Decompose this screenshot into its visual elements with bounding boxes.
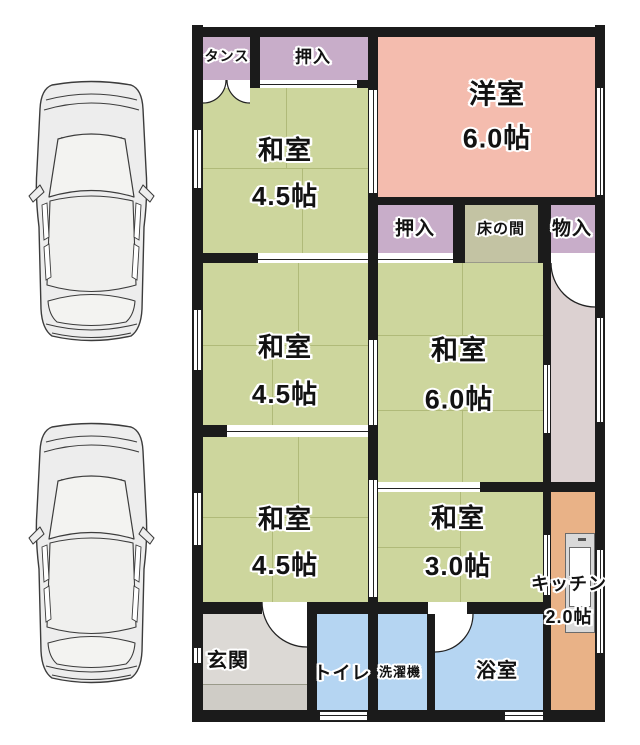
opening-h6 xyxy=(378,483,480,492)
parking-car-2 xyxy=(29,424,154,683)
label-washitsu-d-size: 4.5帖 xyxy=(252,552,318,578)
window-bath xyxy=(505,711,543,721)
window-toilet xyxy=(320,711,367,721)
room-corridor xyxy=(551,263,595,482)
opening-washitsu-a-western xyxy=(369,90,377,193)
wall-below-western xyxy=(368,197,605,205)
opening-h1 xyxy=(258,254,368,263)
opening-oshiire-mid xyxy=(378,254,453,263)
window-corridor xyxy=(596,318,604,422)
wall-outer-top xyxy=(192,27,605,37)
floor-plan-page: タンス 押入 洋室 6.0帖 和室 4.5帖 押入 床の間 物入 和室 4.5帖… xyxy=(0,0,640,745)
label-tokonoma: 床の間 xyxy=(477,222,525,237)
room-laundry xyxy=(376,614,427,710)
label-washitsu-a-name: 和室 xyxy=(258,137,312,163)
wall-laundry-bath xyxy=(427,614,435,710)
parking-car-1 xyxy=(29,82,154,341)
wall-toilet-left xyxy=(307,602,317,710)
wall-tansu-pillar xyxy=(250,37,260,88)
window-left-2 xyxy=(193,310,202,370)
tatami-seam xyxy=(203,168,368,169)
label-toilet: トイレ xyxy=(314,664,371,682)
label-washitsu-e-size: 3.0帖 xyxy=(425,553,491,579)
wall-h6 xyxy=(480,482,595,492)
label-washitsu-a-size: 4.5帖 xyxy=(252,183,318,209)
label-kitchen-name: キッチン xyxy=(531,575,607,593)
label-western-size: 6.0帖 xyxy=(463,126,532,153)
room-western xyxy=(378,37,595,197)
label-genkan: 玄関 xyxy=(207,651,249,671)
wall-h3-a xyxy=(192,602,262,614)
label-washitsu-c-size: 6.0帖 xyxy=(425,387,494,414)
wall-oshiire-tokonoma-pillar xyxy=(453,205,465,263)
opening-washitsu-b-c xyxy=(369,340,377,425)
opening-h2 xyxy=(227,426,368,436)
wall-h3-c xyxy=(378,602,428,614)
opening-washitsu-c-corridor xyxy=(544,365,550,433)
tatami-seam xyxy=(462,410,463,482)
label-bath: 浴室 xyxy=(476,661,518,681)
window-genkan xyxy=(193,648,202,663)
window-kitchen xyxy=(596,550,604,653)
label-monoire: 物入 xyxy=(552,220,592,239)
label-oshiire-top: 押入 xyxy=(295,49,331,66)
label-washitsu-d-name: 和室 xyxy=(258,506,312,532)
wall-h3-d xyxy=(467,602,551,614)
genkan-step-line xyxy=(203,684,307,685)
tatami-seam xyxy=(462,263,463,335)
doorway-genkan xyxy=(262,602,307,614)
label-tansu: タンス xyxy=(205,49,250,63)
doorway-tansu xyxy=(203,80,250,88)
label-oshiire-mid: 押入 xyxy=(395,220,435,239)
wall-h3-b xyxy=(307,602,378,614)
tatami-seam xyxy=(378,547,460,548)
window-western xyxy=(596,88,604,195)
opening-washitsu-d-e xyxy=(369,480,377,597)
label-washitsu-b-name: 和室 xyxy=(258,334,312,360)
tokonoma-edge-line xyxy=(465,262,538,263)
label-western-name: 洋室 xyxy=(469,82,525,109)
wall-tokonoma-monoire-pillar xyxy=(538,205,551,263)
wall-closet-bottom xyxy=(357,80,368,88)
room-genkan-lower xyxy=(203,685,307,710)
wall-h2 xyxy=(192,425,227,437)
window-left-3 xyxy=(193,493,202,545)
label-washitsu-b-size: 4.5帖 xyxy=(252,381,318,407)
label-washitsu-e-name: 和室 xyxy=(431,505,485,531)
window-left-1 xyxy=(193,130,202,188)
doorway-bath xyxy=(428,602,467,614)
doorway-monoire xyxy=(551,253,595,263)
label-kitchen-size: 2.0帖 xyxy=(545,608,592,626)
label-laundry: 洗濯機 xyxy=(379,666,421,679)
kitchen-faucet xyxy=(578,538,586,541)
wall-h1 xyxy=(192,253,258,263)
wall-outer-bottom xyxy=(192,710,605,722)
label-washitsu-c-name: 和室 xyxy=(431,338,487,365)
room-toilet xyxy=(317,614,368,710)
opening-oshiire-top xyxy=(260,80,357,88)
room-washitsu-c xyxy=(378,263,543,482)
